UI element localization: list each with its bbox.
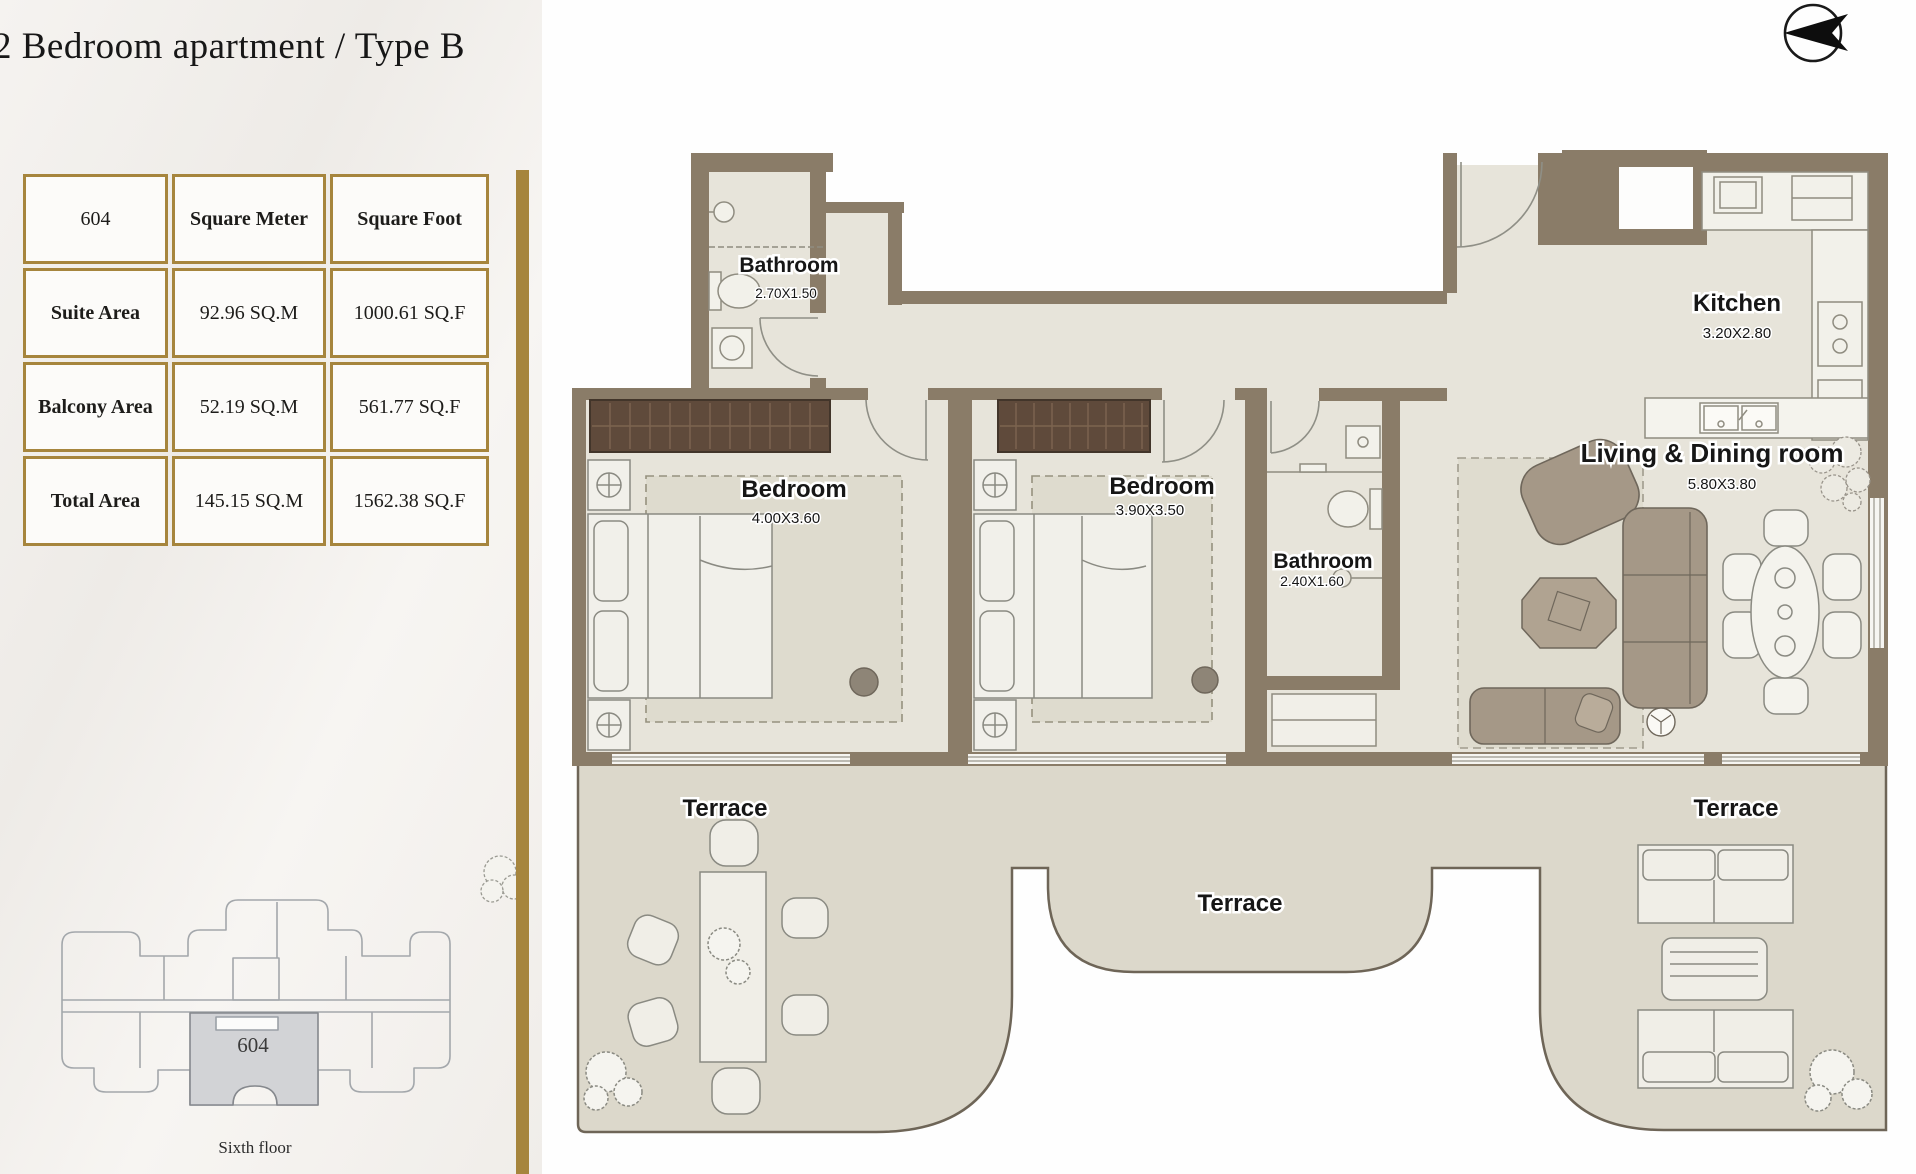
table-row: Total Area 145.15 SQ.M 1562.38 SQ.F	[23, 456, 489, 546]
outdoor-coffee-table	[1662, 938, 1767, 1000]
sofa	[1623, 508, 1707, 708]
brochure-page: 2 Bedroom apartment / Type B 604 Square …	[0, 0, 1916, 1174]
hall-closet	[1272, 694, 1376, 746]
outdoor-chair	[710, 820, 758, 866]
page-title: 2 Bedroom apartment / Type B	[0, 25, 465, 68]
dining-chair	[1823, 612, 1861, 658]
col-header-sqf: Square Foot	[330, 174, 489, 264]
dining-chair	[1764, 678, 1808, 714]
balcony-area-sqf: 561.77 SQ.F	[330, 362, 489, 452]
toilet-bowl-icon	[718, 274, 760, 308]
shower-head-icon	[714, 202, 734, 222]
gold-divider-bar	[516, 170, 529, 1174]
room-label-bathroom-mid: Bathroom	[1273, 550, 1372, 573]
pillow	[980, 521, 1014, 601]
room-label-kitchen: Kitchen	[1693, 290, 1781, 317]
outdoor-chair	[782, 898, 828, 938]
area-table: 604 Square Meter Square Foot Suite Area …	[19, 170, 493, 550]
room-label-bedroom-1: Bedroom	[741, 476, 846, 503]
oven	[1818, 302, 1862, 366]
outdoor-chair	[712, 1068, 760, 1114]
washer-icon	[712, 328, 752, 368]
key-plan-unit-number: 604	[237, 1033, 269, 1057]
table-row: Suite Area 92.96 SQ.M 1000.61 SQ.F	[23, 268, 489, 358]
pouf	[850, 668, 878, 696]
key-plan: 604 Sixth floor	[62, 900, 450, 1157]
table-row: Balcony Area 52.19 SQ.M 561.77 SQ.F	[23, 362, 489, 452]
room-dims-bathroom-top: 2.70X1.50	[755, 286, 817, 301]
key-plan-unit-cutout	[216, 1017, 278, 1030]
room-label-terrace-right: Terrace	[1694, 795, 1779, 822]
dining-chair	[1764, 510, 1808, 546]
key-plan-floor-label: Sixth floor	[218, 1138, 292, 1157]
room-label-bedroom-2: Bedroom	[1109, 473, 1214, 500]
toilet-bowl-icon	[1328, 491, 1368, 527]
duct-shaft	[1618, 166, 1694, 230]
room-dims-kitchen: 3.20X2.80	[1703, 325, 1771, 342]
apartment-plan: Bathroom 2.70X1.50 Bedroom 4.00X3.60 Bed…	[481, 150, 1888, 1132]
room-dims-bedroom-1: 4.00X3.60	[752, 510, 820, 527]
suite-area-label: Suite Area	[23, 268, 168, 358]
room-dims-bedroom-2: 3.90X3.50	[1116, 502, 1184, 519]
room-label-terrace-left: Terrace	[683, 795, 768, 822]
room-label-bathroom-top: Bathroom	[739, 254, 838, 277]
coffee-table	[1522, 578, 1616, 648]
suite-area-sqm: 92.96 SQ.M	[172, 268, 326, 358]
col-header-sqm: Square Meter	[172, 174, 326, 264]
room-dims-bathroom-mid: 2.40X1.60	[1280, 573, 1344, 589]
pillow	[980, 611, 1014, 691]
total-area-sqf: 1562.38 SQ.F	[330, 456, 489, 546]
pouf	[1192, 667, 1218, 693]
sink-icon	[1346, 426, 1380, 458]
room-label-living: Living & Dining room	[1581, 438, 1844, 468]
suite-area-sqf: 1000.61 SQ.F	[330, 268, 489, 358]
toilet-tank	[1370, 489, 1382, 529]
dining-chair	[1823, 554, 1861, 600]
pillow	[594, 611, 628, 691]
pillow	[594, 521, 628, 601]
unit-number-cell: 604	[23, 174, 168, 264]
key-plan-core	[233, 958, 279, 1000]
outdoor-chair	[782, 995, 828, 1035]
balcony-area-sqm: 52.19 SQ.M	[172, 362, 326, 452]
balcony-area-label: Balcony Area	[23, 362, 168, 452]
key-plan-top-outline	[62, 900, 450, 1012]
dining-table	[1751, 546, 1819, 678]
double-sink	[1700, 403, 1778, 433]
table-row: 604 Square Meter Square Foot	[23, 174, 489, 264]
room-dims-living: 5.80X3.80	[1688, 476, 1756, 493]
total-area-sqm: 145.15 SQ.M	[172, 456, 326, 546]
compass-north-icon	[1784, 5, 1848, 61]
total-area-label: Total Area	[23, 456, 168, 546]
room-label-terrace-center: Terrace	[1198, 890, 1283, 917]
